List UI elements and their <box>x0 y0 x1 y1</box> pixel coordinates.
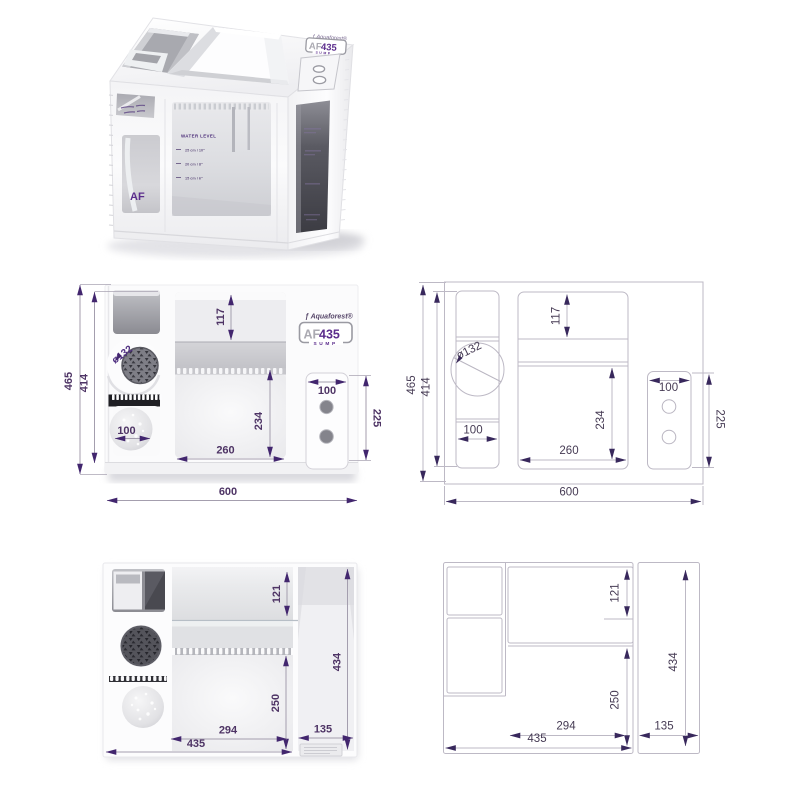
svg-text:AF: AF <box>130 191 145 203</box>
svg-text:100: 100 <box>463 425 482 437</box>
svg-text:250: 250 <box>610 690 622 709</box>
svg-text:100: 100 <box>117 425 135 437</box>
svg-text:20 cm / 8": 20 cm / 8" <box>185 163 203 167</box>
svg-text:294: 294 <box>219 725 238 737</box>
svg-text:434: 434 <box>332 652 344 671</box>
svg-text:15 cm / 6": 15 cm / 6" <box>185 177 203 181</box>
svg-text:121: 121 <box>271 585 283 603</box>
svg-text:25 cm / 10": 25 cm / 10" <box>185 149 205 153</box>
svg-text:AF: AF <box>304 328 321 342</box>
svg-text:294: 294 <box>556 721 576 733</box>
svg-text:225: 225 <box>371 409 383 427</box>
svg-text:435: 435 <box>527 733 546 745</box>
svg-text:260: 260 <box>559 445 578 457</box>
svg-text:234: 234 <box>595 410 607 430</box>
svg-text:600: 600 <box>219 486 237 498</box>
svg-text:SUMP: SUMP <box>314 341 338 347</box>
svg-text:WATER LEVEL: WATER LEVEL <box>181 134 216 139</box>
svg-text:260: 260 <box>216 445 234 457</box>
svg-text:600: 600 <box>559 487 578 499</box>
svg-text:100: 100 <box>318 385 336 397</box>
svg-text:100: 100 <box>659 382 678 394</box>
svg-text:465: 465 <box>63 372 75 390</box>
svg-text:117: 117 <box>551 307 563 325</box>
svg-text:435: 435 <box>187 738 205 750</box>
svg-text:135: 135 <box>314 724 332 736</box>
svg-text:ƒ Aquaforest®: ƒ Aquaforest® <box>305 313 354 321</box>
svg-text:414: 414 <box>79 373 91 392</box>
svg-text:465: 465 <box>406 375 418 394</box>
svg-text:234: 234 <box>253 411 265 430</box>
svg-text:225: 225 <box>714 409 726 428</box>
svg-text:434: 434 <box>668 652 680 672</box>
svg-text:121: 121 <box>610 583 622 602</box>
svg-text:135: 135 <box>654 721 673 733</box>
svg-text:414: 414 <box>421 377 433 397</box>
svg-text:435: 435 <box>319 328 340 342</box>
svg-text:117: 117 <box>215 308 227 326</box>
svg-text:250: 250 <box>270 694 282 712</box>
